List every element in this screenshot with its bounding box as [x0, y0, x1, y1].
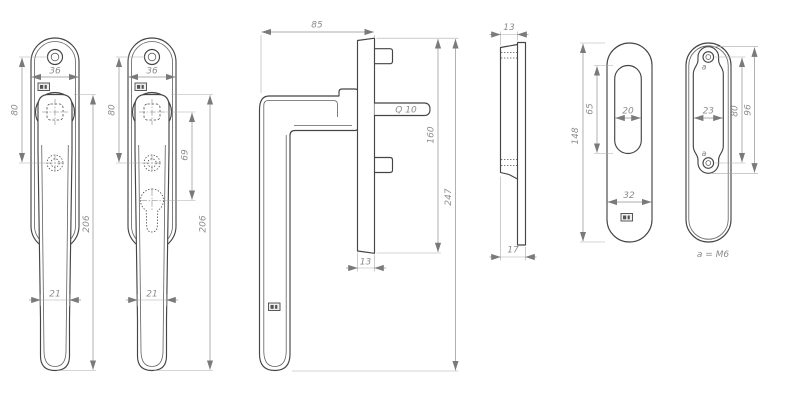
mount-plate-side — [358, 38, 375, 253]
cover-edge-bar — [518, 43, 526, 246]
dim-width: 32 — [623, 191, 635, 201]
grip-logo — [269, 303, 281, 311]
dim-plate-width: 36 — [49, 67, 61, 77]
dim-length: 206 — [199, 215, 209, 232]
dim-cylinder-distance: 69 — [181, 149, 191, 161]
dim-grip-width: 21 — [146, 290, 157, 300]
cover-inner-contour — [689, 46, 728, 239]
plate-edge-view: 13 17 — [490, 23, 537, 261]
grip-side-outline — [260, 89, 359, 371]
dim-plate-height: 160 — [427, 126, 437, 143]
dim-hole-spacing: 80 — [108, 104, 118, 116]
dim-slot-width: 20 — [622, 107, 634, 117]
brand-logo — [621, 214, 633, 222]
handle-body — [31, 38, 79, 371]
handle-front-plain-view: 36 80 206 21 — [11, 38, 97, 371]
hole-label-top: a — [702, 63, 707, 72]
dim-grip-width: 21 — [49, 290, 60, 300]
dimension-lines — [490, 32, 537, 261]
fixing-tab-top — [375, 49, 393, 64]
screw-boss-bottom — [703, 158, 714, 169]
dim-hole-spacing: 80 — [731, 105, 741, 117]
dim-length: 206 — [82, 215, 92, 232]
fixing-tab-bottom — [375, 158, 393, 173]
plate-back-view: a a 23 80 96 a = M6 — [686, 43, 758, 260]
dim-total-thickness: 17 — [507, 246, 519, 256]
dim-cover-thickness: 13 — [503, 23, 515, 33]
cover-outline — [607, 43, 652, 242]
dim-plate-width: 13 — [360, 258, 372, 268]
handle-side-view: 85 Q 10 160 247 13 — [260, 21, 459, 372]
dim-projection: 85 — [311, 21, 323, 31]
dim-insert-width: 23 — [703, 107, 715, 117]
dim-insert-height: 96 — [744, 104, 754, 116]
technical-drawing-canvas: 36 80 206 21 36 80 69 206 21 — [0, 0, 800, 403]
thread-note: a = M6 — [697, 250, 730, 260]
spindle-size-label: Q 10 — [395, 106, 417, 116]
dim-hole-spacing: 80 — [11, 104, 21, 116]
hole-label-bottom: a — [702, 149, 707, 158]
plate-front-view: 148 65 20 32 — [571, 43, 652, 242]
dim-height: 148 — [571, 127, 581, 144]
screw-boss-top-inner — [706, 55, 711, 60]
screw-boss-bottom-inner — [706, 161, 711, 166]
dim-total-height: 247 — [444, 188, 454, 205]
screw-boss-top — [703, 52, 714, 63]
insert-edge-flange — [501, 45, 518, 180]
hidden-screw-edges — [501, 53, 517, 166]
dim-slot-height: 65 — [586, 103, 596, 115]
dim-plate-width: 36 — [146, 67, 158, 77]
handle-front-cylinder-view: 36 80 69 206 21 — [108, 38, 214, 371]
